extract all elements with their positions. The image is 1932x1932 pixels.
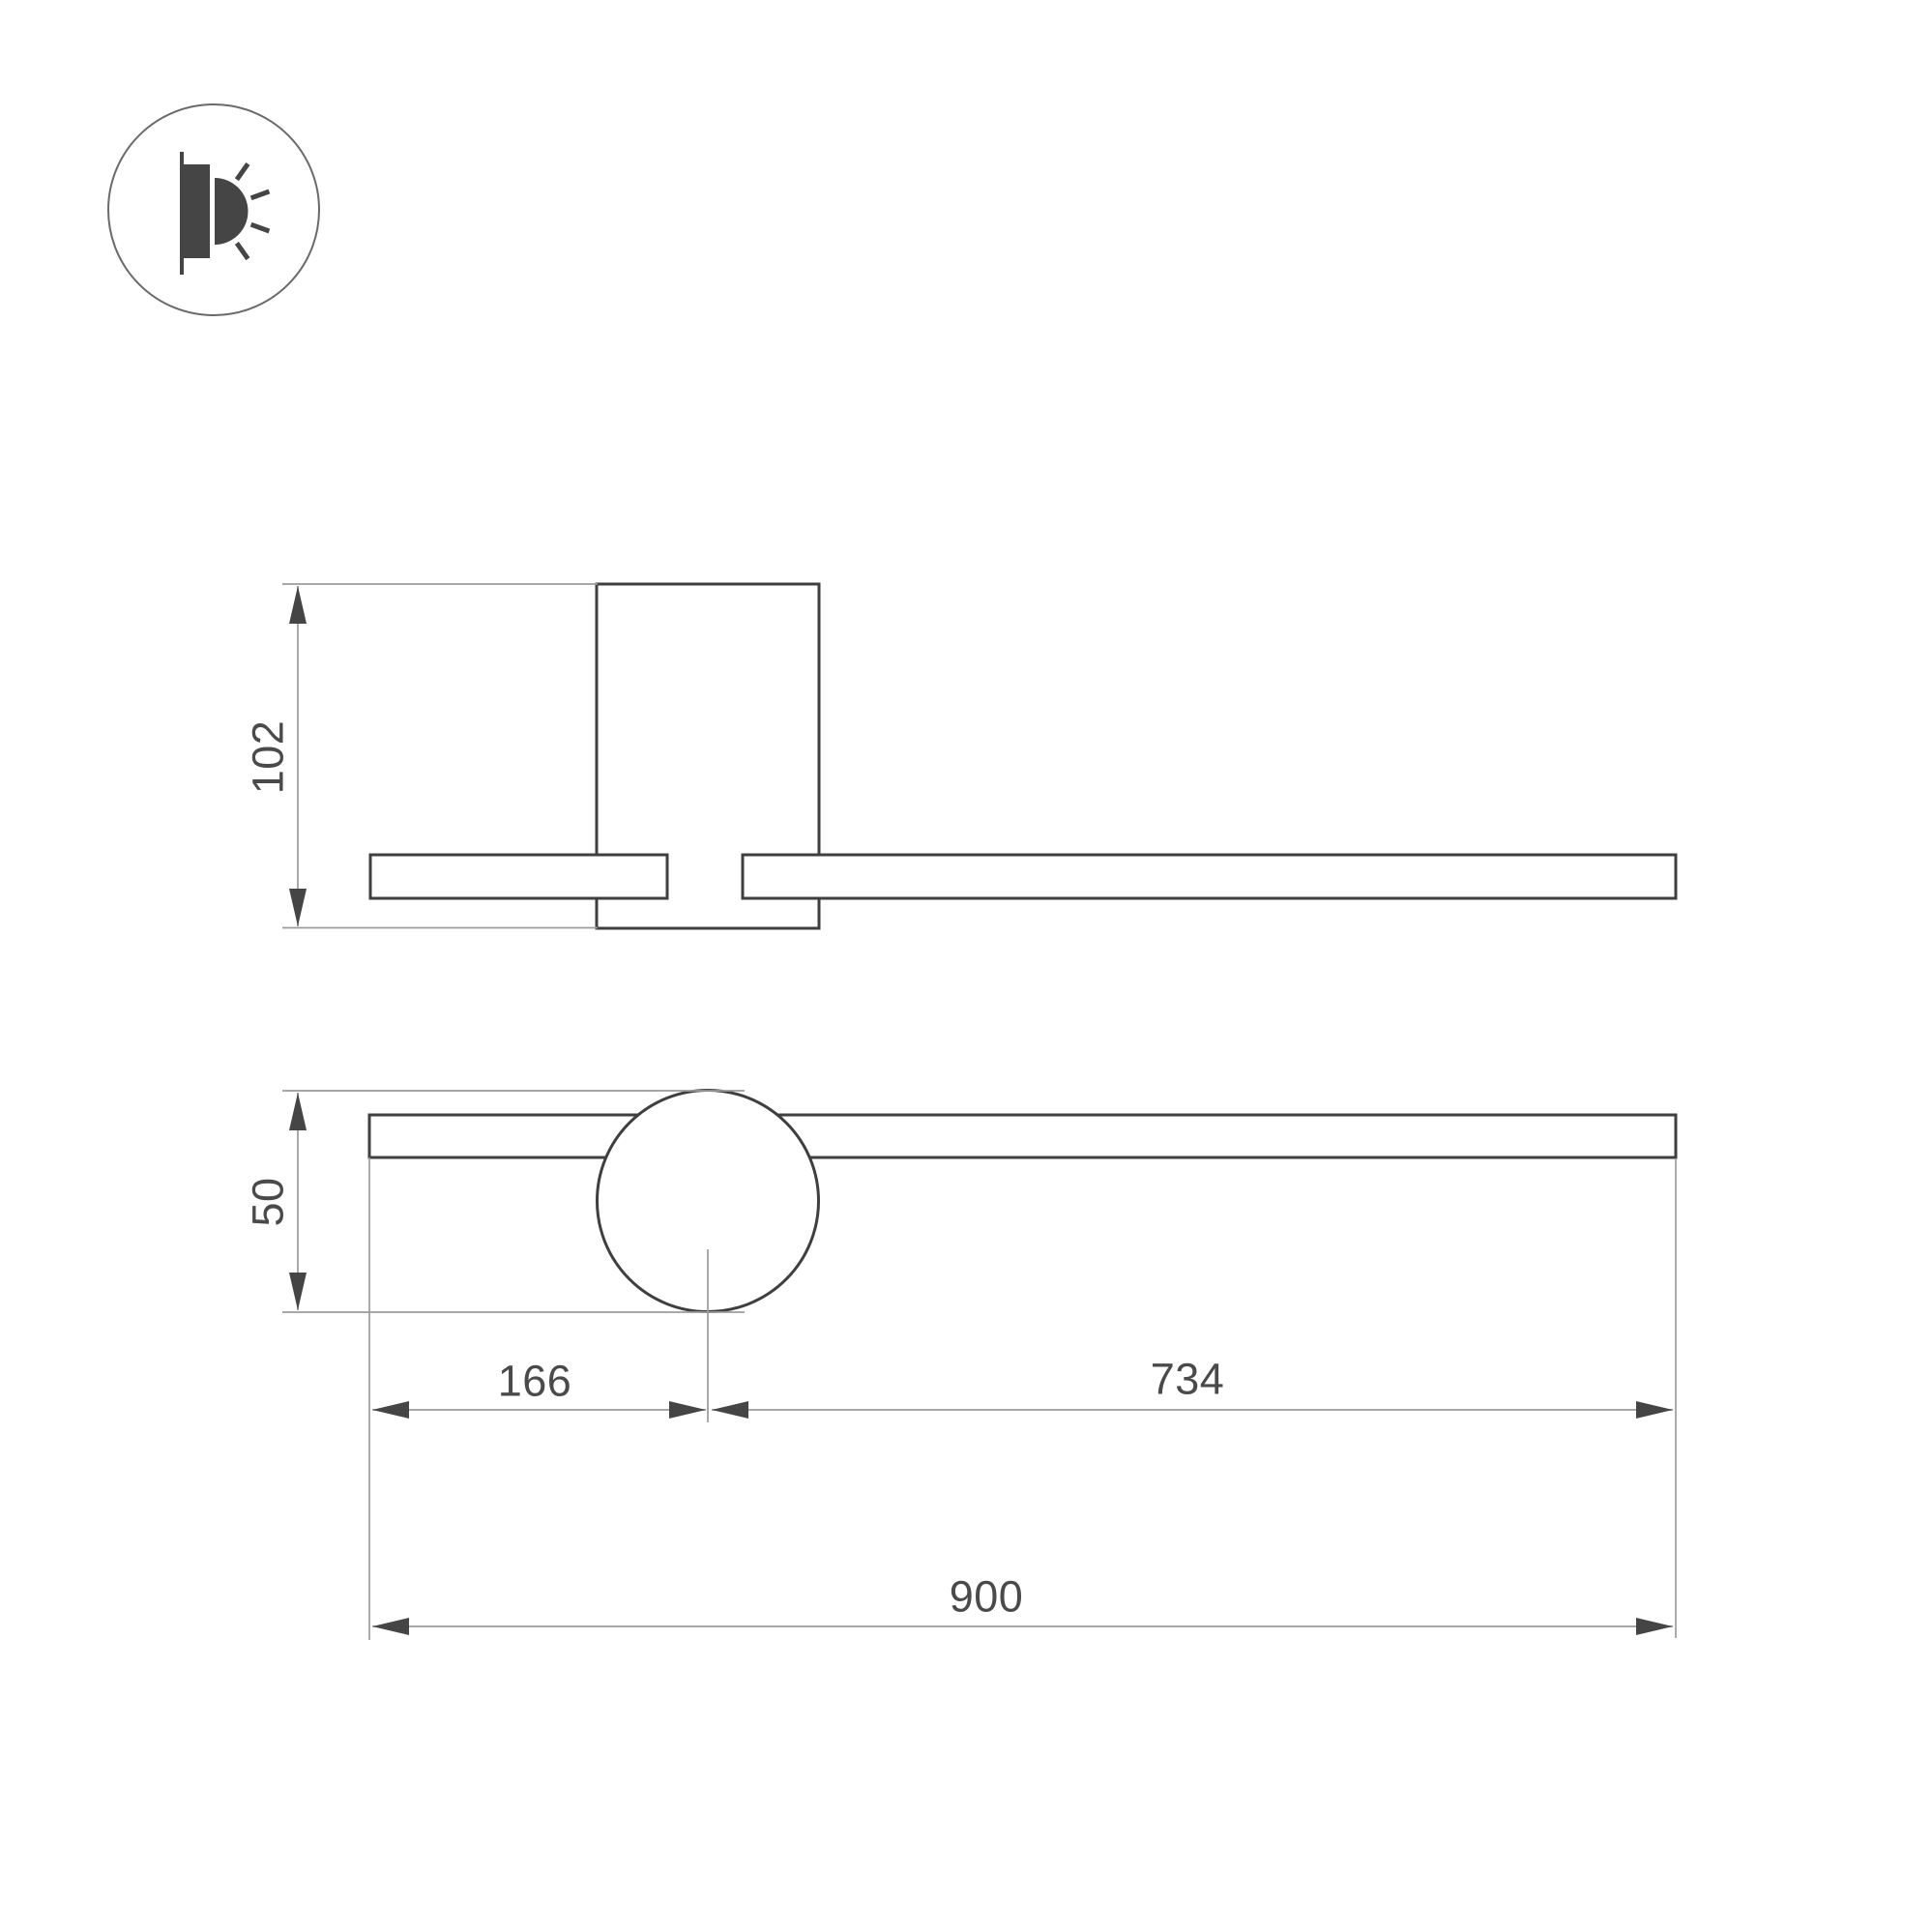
side-view-bar-left-segment [370,855,667,898]
icon-border-circle [108,104,319,315]
dimension-900: 900 [372,1572,1673,1636]
icon-lamp-body [184,164,210,258]
arrow-right-icon [669,1401,706,1419]
arrow-left-icon [372,1618,409,1635]
dim-734-label: 734 [1151,1355,1225,1404]
arrow-up-icon [289,586,307,624]
wall-light-icon [108,104,319,315]
arrow-down-icon [289,889,307,926]
arrow-up-icon [289,1093,307,1130]
arrow-left-icon [712,1401,748,1419]
arrow-right-icon [1636,1401,1673,1419]
technical-drawing-canvas: 102 50 16 [0,0,1932,1932]
front-view: 50 166 734 [244,1091,1677,1641]
dim-900-label: 900 [950,1572,1024,1622]
side-view: 102 [244,584,1677,928]
front-view-bar [369,1115,1676,1157]
drawing-page: 102 50 16 [0,0,1932,1932]
dimension-166: 166 [372,1357,706,1420]
dim-50-label: 50 [244,1177,293,1226]
side-view-bar-right-segment [743,855,1676,898]
dimension-734: 734 [712,1355,1673,1420]
dim-166-label: 166 [498,1357,572,1406]
dim-102-label: 102 [244,720,293,795]
arrow-right-icon [1636,1618,1673,1635]
arrow-left-icon [372,1401,409,1419]
arrow-down-icon [289,1273,307,1310]
